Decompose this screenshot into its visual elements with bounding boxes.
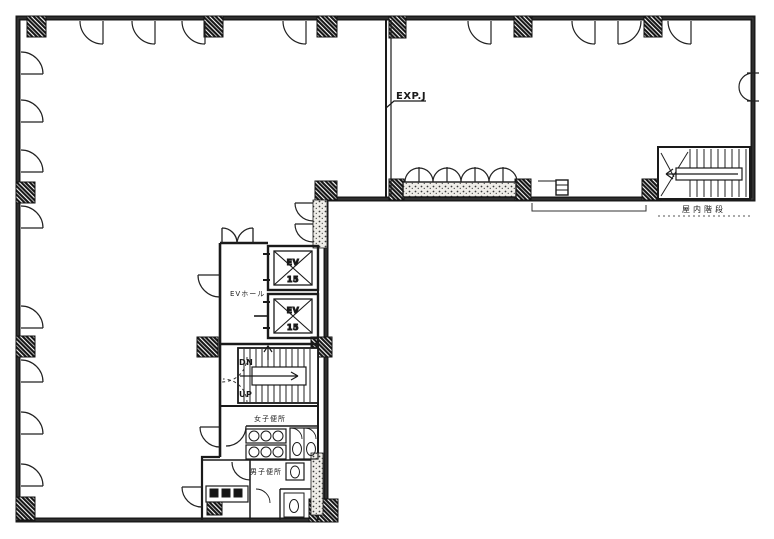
elevator-1-label: EV — [287, 258, 300, 267]
wing-entry-band — [403, 167, 517, 197]
stair-down-label: DN — [239, 358, 253, 367]
womens-sink-counter — [246, 429, 286, 459]
floor-plan-page: EXP.J 屋内階段 — [0, 0, 774, 539]
expansion-joint-wall — [386, 20, 391, 197]
stair-up-label: UP — [239, 390, 252, 399]
womens-stalls — [290, 428, 318, 459]
core-stair: DN UP — [222, 346, 318, 403]
wall-fixture — [538, 180, 568, 195]
elevator-hall-double-door — [222, 228, 253, 244]
left-wall-door-swings — [21, 52, 43, 486]
elevator-shaft-2: EV 15 — [254, 294, 318, 338]
mens-toilet-label: 男子便所 — [250, 467, 282, 476]
womens-toilet-label: 女子便所 — [254, 414, 286, 423]
elevator-shaft-1: EV 15 — [263, 246, 318, 290]
mens-wash-counter — [206, 486, 248, 502]
entry-band-door-swings — [405, 167, 517, 182]
indoor-stair: 屋内階段 — [658, 147, 752, 216]
floor-plan-drawing: EXP.J 屋内階段 — [0, 0, 774, 539]
dimension-bracket — [532, 203, 646, 211]
right-wall-door-swing — [739, 73, 759, 101]
corridor-door-swings — [295, 203, 313, 242]
elevator-1-capacity: 15 — [287, 275, 299, 284]
elevator-hall: EVホール — [230, 290, 265, 298]
elevator-2-label: EV — [287, 306, 300, 315]
expansion-joint-label: EXP.J — [396, 91, 426, 102]
expansion-joint-callout: EXP.J — [386, 91, 426, 108]
elevator-hall-label: EVホール — [230, 290, 265, 298]
structural-columns — [16, 16, 662, 522]
elevator-2-capacity: 15 — [287, 323, 299, 332]
womens-toilet: 女子便所 — [246, 414, 318, 459]
indoor-stair-label: 屋内階段 — [682, 204, 726, 214]
